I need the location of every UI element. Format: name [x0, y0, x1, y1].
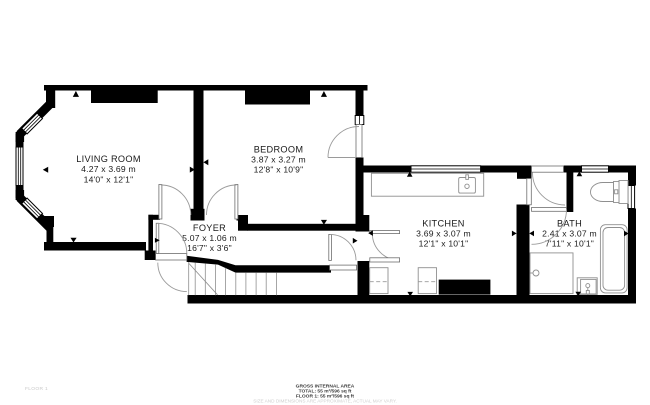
svg-text:3.87 x 3.27 m: 3.87 x 3.27 m [251, 155, 306, 165]
svg-text:12'1" x 10'1": 12'1" x 10'1" [419, 239, 469, 249]
svg-text:BEDROOM: BEDROOM [254, 144, 304, 154]
svg-text:LIVING ROOM: LIVING ROOM [76, 154, 141, 164]
svg-text:12'8" x 10'9": 12'8" x 10'9" [254, 165, 304, 175]
svg-text:3.69 x 3.07 m: 3.69 x 3.07 m [416, 229, 471, 239]
svg-text:5.07 x 1.06 m: 5.07 x 1.06 m [182, 233, 237, 243]
svg-text:16'7" x 3'6": 16'7" x 3'6" [187, 243, 232, 253]
svg-text:TOTAL: 55 m²/596 sq ft: TOTAL: 55 m²/596 sq ft [299, 388, 352, 394]
svg-text:7'11" x 10'1": 7'11" x 10'1" [545, 239, 594, 249]
svg-text:BATH: BATH [557, 218, 582, 228]
svg-text:4.27 x 3.69 m: 4.27 x 3.69 m [81, 164, 136, 174]
svg-text:SIZE AND DIMENSIONS ARE APPROX: SIZE AND DIMENSIONS ARE APPROXIMATE, ACT… [253, 399, 397, 404]
svg-text:2.41 x 3.07 m: 2.41 x 3.07 m [542, 229, 597, 239]
svg-text:FLOOR 1: FLOOR 1 [25, 386, 48, 392]
svg-text:FOYER: FOYER [193, 223, 226, 233]
svg-text:KITCHEN: KITCHEN [422, 218, 464, 228]
svg-text:14'0" x 12'1": 14'0" x 12'1" [84, 174, 134, 184]
